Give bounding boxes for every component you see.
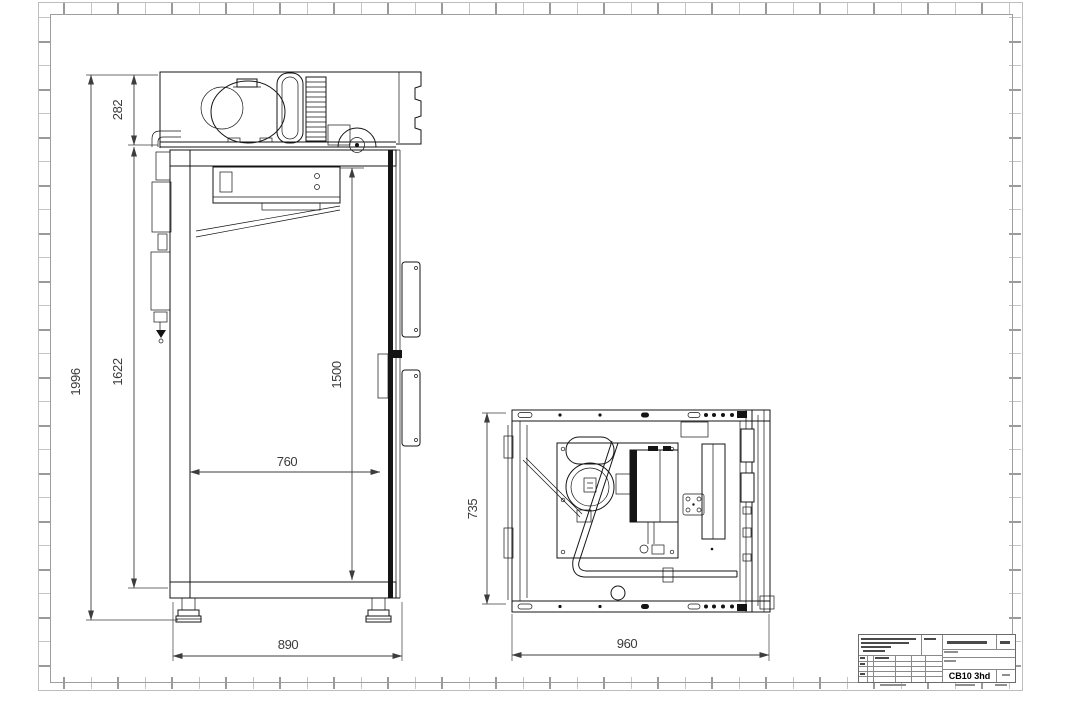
condenser-top: [616, 446, 678, 522]
dim-overall-depth: 890: [278, 637, 299, 652]
pipework: [573, 441, 737, 600]
left-wall-top-view: [504, 421, 582, 601]
door-latch: [393, 350, 402, 358]
drain-assembly: [151, 152, 171, 343]
accumulator: [277, 73, 303, 143]
dim-overall-width: 960: [617, 636, 638, 651]
top-insulation: [170, 150, 396, 166]
compressor-side: [201, 79, 285, 143]
drain-hole: [611, 586, 625, 600]
dim-body-height: 1622: [110, 358, 125, 385]
door-gasket-block: [378, 354, 388, 398]
screw-plate: [683, 494, 704, 515]
fan-side: [338, 128, 376, 153]
dim-inner-depth: 760: [277, 454, 298, 469]
top-view: 735 960: [465, 410, 774, 661]
dim-machine-compartment-height: 282: [110, 100, 125, 121]
technical-drawing: 1996 282 1622 1500 760 890: [0, 0, 1066, 703]
drawing-sheet: 1996 282 1622 1500 760 890: [0, 0, 1066, 703]
hinge-top-view-lower: [741, 473, 754, 502]
dim-door-height: 1500: [329, 361, 344, 388]
pipe-elbow: [152, 131, 181, 147]
cabinet-body: [170, 150, 400, 598]
title-block: CB10 3hd: [858, 634, 1016, 683]
dim-overall-height: 1996: [68, 368, 83, 395]
door-section: [378, 150, 420, 598]
leveling-feet: [176, 598, 391, 622]
dim-top-view-depth: 735: [465, 499, 480, 520]
top-view-outline: [512, 410, 770, 612]
bottom-insulation: [170, 582, 396, 598]
title-block-model: CB10 3hd: [943, 669, 996, 682]
evaporator: [196, 167, 340, 237]
door-hinge-lower: [402, 370, 420, 446]
top-view-dimensions: 735 960: [465, 413, 769, 661]
cover-plate: [681, 422, 708, 437]
side-view: 1996 282 1622 1500 760 890: [68, 72, 421, 661]
machine-compartment: [152, 72, 421, 153]
back-wall-insulation: [170, 150, 190, 598]
hinge-top-view-upper: [741, 429, 754, 462]
electrical-box: [702, 444, 725, 539]
door-edge-top-view: [740, 410, 774, 612]
door-hinge-upper: [402, 262, 420, 337]
side-view-dimensions: 1996 282 1622 1500 760 890: [68, 75, 402, 661]
condenser-fins: [306, 77, 326, 141]
